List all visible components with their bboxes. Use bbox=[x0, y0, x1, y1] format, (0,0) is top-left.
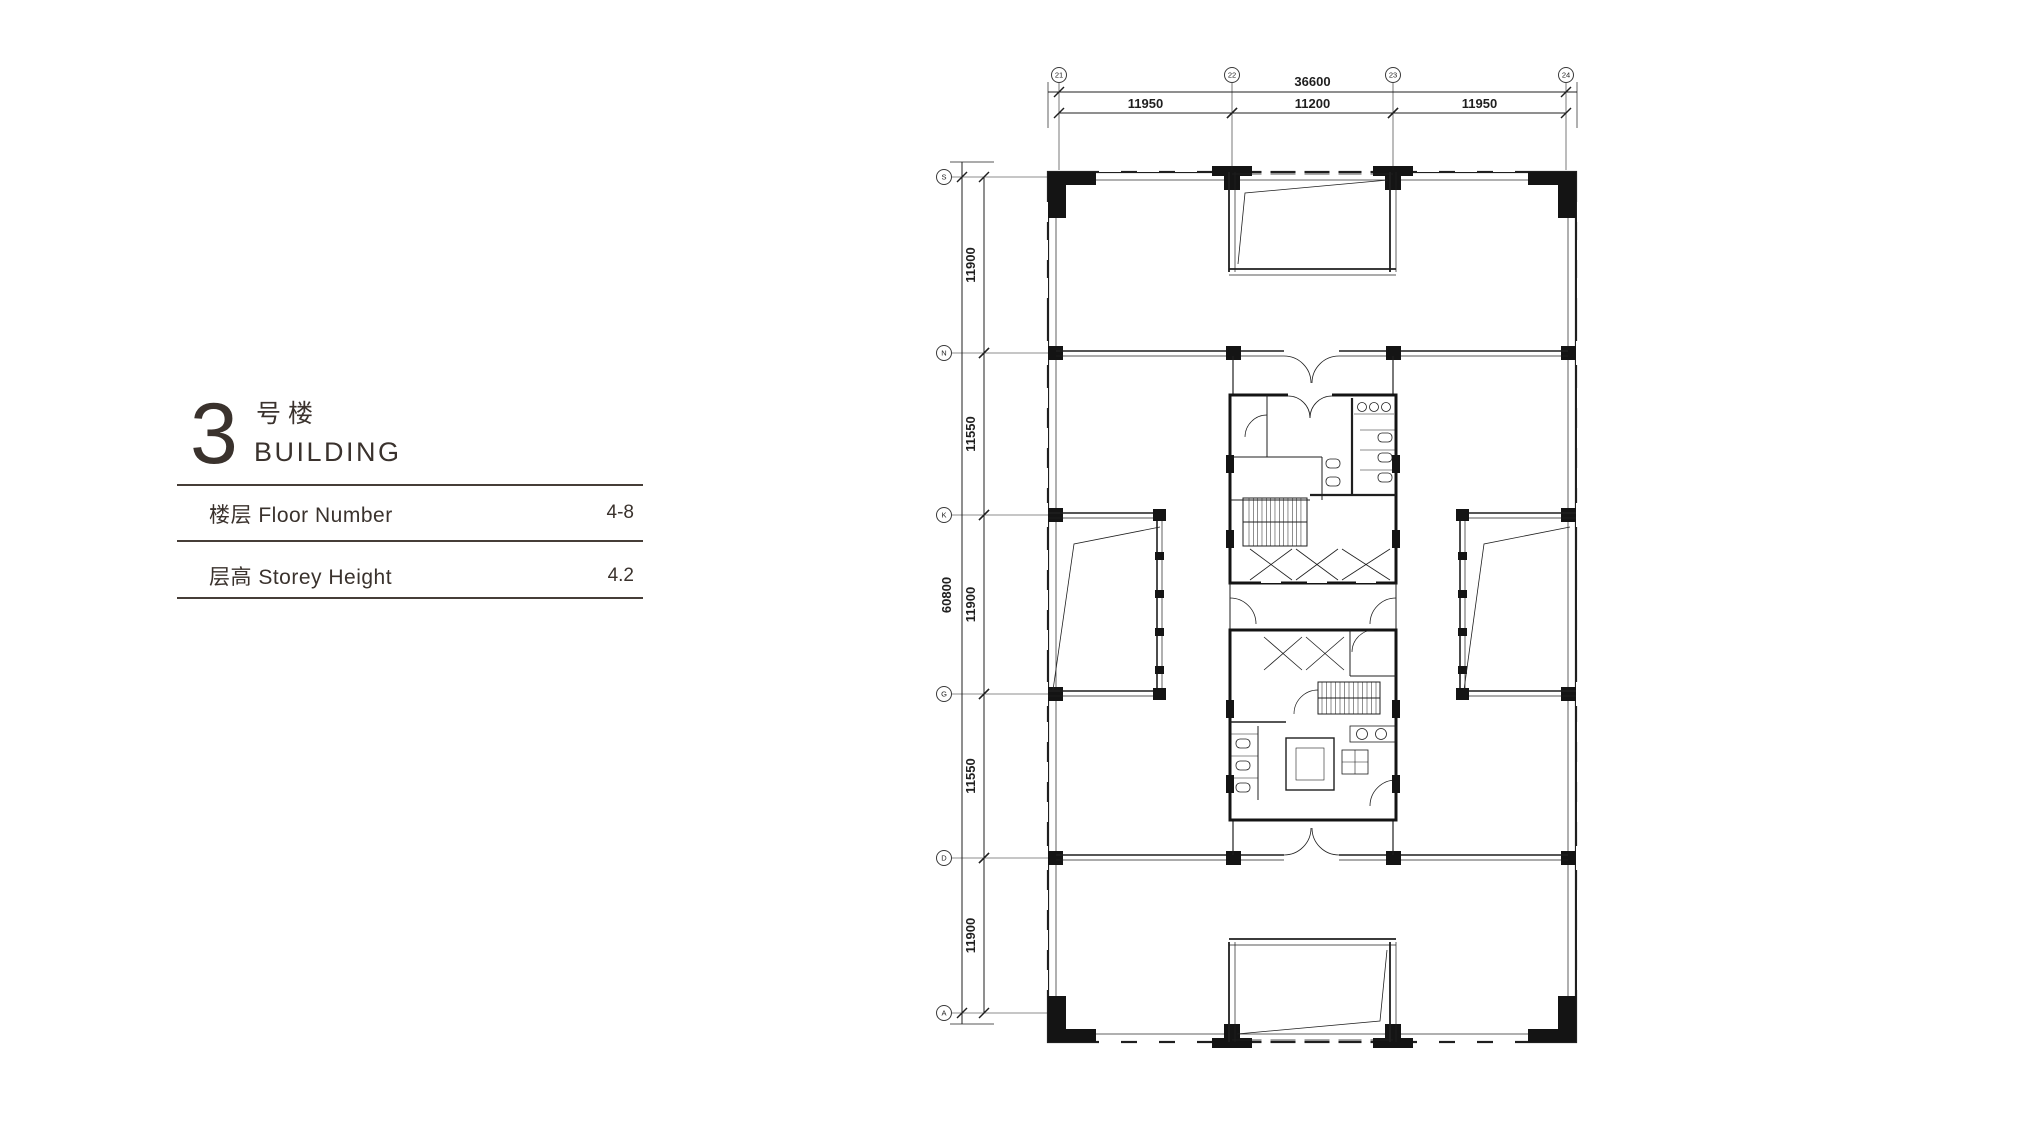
floor-plan-drawing bbox=[1028, 152, 1596, 1062]
dim-label-top-0: 11950 bbox=[1128, 96, 1163, 111]
dim-label-left-overall: 60800 bbox=[939, 577, 954, 613]
dim-label-left-2: 11900 bbox=[963, 587, 978, 622]
grid-label-col-22: 22 bbox=[1228, 71, 1236, 80]
grid-label-col-23: 23 bbox=[1389, 71, 1397, 80]
dim-label-top-overall: 36600 bbox=[1294, 74, 1330, 89]
dim-label-left-4: 11900 bbox=[963, 918, 978, 953]
grid-label-row-N: N bbox=[941, 349, 946, 358]
grid-label-row-S: S bbox=[941, 173, 946, 182]
dim-label-top-1: 11200 bbox=[1295, 96, 1330, 111]
dim-label-top-2: 11950 bbox=[1462, 96, 1497, 111]
brochure-page: { "panel": { "number": "3", "label_cn": … bbox=[0, 0, 2032, 1144]
dim-label-left-1: 11550 bbox=[963, 416, 978, 451]
dim-label-left-0: 11900 bbox=[963, 247, 978, 282]
grid-label-col-24: 24 bbox=[1562, 71, 1570, 80]
dim-label-left-3: 11550 bbox=[963, 758, 978, 793]
floor-plan: 3660011950112001195060800119001155011900… bbox=[0, 0, 2032, 1144]
grid-label-row-D: D bbox=[941, 854, 947, 863]
grid-label-col-21: 21 bbox=[1055, 71, 1063, 80]
grid-label-row-K: K bbox=[941, 511, 946, 520]
grid-label-row-A: A bbox=[941, 1009, 946, 1018]
grid-label-row-G: G bbox=[941, 690, 947, 699]
